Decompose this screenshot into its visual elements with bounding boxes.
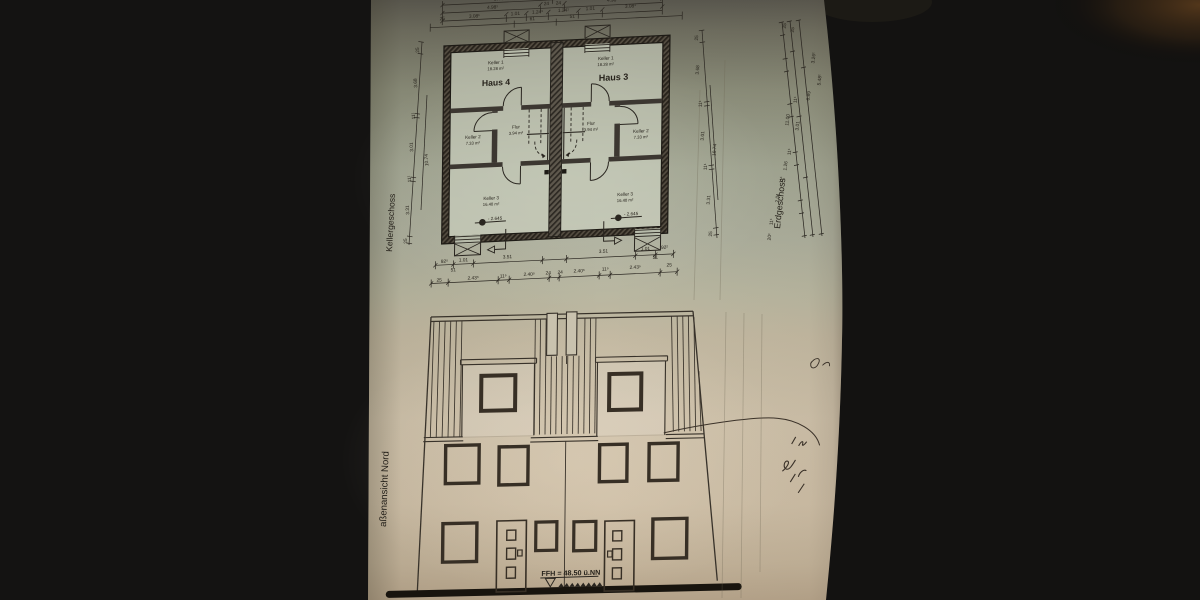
svg-text:20¹: 20¹: [767, 233, 774, 241]
svg-text:25: 25: [667, 262, 673, 268]
svg-text:3.01: 3.01: [795, 121, 802, 131]
svg-text:1.24¹: 1.24¹: [558, 8, 569, 15]
svg-text:25: 25: [708, 231, 714, 237]
svg-text:7.33 m²: 7.33 m²: [466, 140, 481, 146]
svg-text:2.43⁵: 2.43⁵: [467, 275, 478, 282]
svg-text:1.01: 1.01: [641, 246, 651, 252]
svg-text:3.68: 3.68: [413, 78, 419, 88]
svg-text:11.00: 11.00: [784, 113, 791, 126]
svg-text:5.48¹: 5.48¹: [816, 74, 823, 86]
svg-text:11¹: 11¹: [411, 112, 417, 119]
svg-text:25: 25: [694, 35, 700, 41]
svg-text:51: 51: [451, 267, 457, 273]
svg-text:3.94 m²: 3.94 m²: [509, 130, 524, 136]
svg-text:7.33 m²: 7.33 m²: [634, 134, 649, 140]
svg-text:4.98¹: 4.98¹: [607, 0, 618, 4]
svg-text:Keller 1: Keller 1: [598, 55, 614, 61]
svg-text:25: 25: [403, 238, 409, 244]
svg-text:11¹: 11¹: [769, 218, 776, 226]
svg-text:61: 61: [530, 16, 536, 22]
svg-text:1.01: 1.01: [586, 6, 596, 12]
svg-text:3.51: 3.51: [503, 254, 513, 260]
svg-text:51: 51: [570, 14, 576, 20]
svg-text:16.40 m²: 16.40 m²: [483, 201, 500, 207]
svg-text:11⁵: 11⁵: [602, 266, 609, 272]
svg-text:Keller 2: Keller 2: [633, 128, 649, 134]
svg-text:2.40⁵: 2.40⁵: [524, 272, 535, 279]
svg-text:Keller 3: Keller 3: [483, 195, 499, 201]
svg-text:3.94 m²: 3.94 m²: [584, 127, 599, 133]
svg-text:10.74: 10.74: [424, 154, 431, 167]
svg-text:25: 25: [436, 277, 442, 283]
svg-text:10.74: 10.74: [712, 143, 719, 156]
svg-text:1.01: 1.01: [459, 257, 469, 263]
svg-text:25: 25: [790, 27, 797, 33]
svg-text:1.01: 1.01: [511, 11, 521, 17]
svg-text:3.01: 3.01: [700, 131, 707, 141]
svg-text:24: 24: [544, 1, 550, 7]
svg-text:24: 24: [546, 270, 552, 276]
svg-text:18.28 m²: 18.28 m²: [597, 61, 614, 67]
svg-text:1.24¹: 1.24¹: [532, 9, 543, 16]
svg-text:Haus 4: Haus 4: [482, 77, 511, 88]
svg-text:25: 25: [415, 47, 421, 53]
svg-text:11¹: 11¹: [793, 96, 800, 104]
svg-text:2.40⁵: 2.40⁵: [574, 268, 585, 275]
svg-text:24: 24: [556, 0, 562, 6]
svg-text:11¹: 11¹: [703, 163, 709, 170]
svg-text:Flur: Flur: [512, 124, 520, 129]
svg-text:Keller 2: Keller 2: [465, 134, 481, 140]
svg-text:4.98¹: 4.98¹: [487, 4, 498, 11]
svg-text:3.26¹: 3.26¹: [810, 52, 817, 64]
svg-text:1.26: 1.26: [783, 161, 790, 171]
svg-text:3.51: 3.51: [599, 248, 609, 254]
svg-text:18.28 m²: 18.28 m²: [487, 66, 504, 72]
svg-text:2.43⁵: 2.43⁵: [630, 264, 641, 271]
svg-text:11¹: 11¹: [779, 176, 786, 184]
svg-text:11¹: 11¹: [698, 100, 704, 107]
svg-text:11⁵: 11⁵: [500, 273, 507, 279]
svg-text:25: 25: [782, 23, 789, 29]
svg-text:- 2.645: - 2.645: [488, 216, 503, 222]
svg-text:16.40 m²: 16.40 m²: [617, 197, 634, 203]
svg-text:Keller 3: Keller 3: [617, 191, 633, 197]
svg-text:Haus 3: Haus 3: [599, 72, 629, 83]
svg-text:24: 24: [558, 270, 564, 276]
svg-text:11¹: 11¹: [407, 175, 413, 182]
svg-text:3.31: 3.31: [706, 195, 713, 205]
svg-text:92²: 92²: [661, 245, 668, 251]
svg-text:- 2.645: - 2.645: [624, 211, 639, 217]
svg-text:2.01: 2.01: [775, 193, 782, 203]
svg-text:11¹: 11¹: [787, 148, 794, 156]
svg-text:6.89: 6.89: [806, 91, 813, 101]
svg-text:3.31: 3.31: [405, 205, 411, 215]
svg-text:3.08¹: 3.08¹: [625, 3, 636, 10]
svg-text:51: 51: [653, 255, 659, 261]
svg-text:Keller 1: Keller 1: [488, 60, 504, 66]
svg-text:3.01: 3.01: [409, 142, 415, 152]
svg-text:92⁵: 92⁵: [441, 259, 448, 265]
svg-text:3.68: 3.68: [695, 65, 702, 75]
svg-text:Flur: Flur: [587, 121, 595, 126]
svg-text:3.08¹: 3.08¹: [469, 13, 480, 20]
